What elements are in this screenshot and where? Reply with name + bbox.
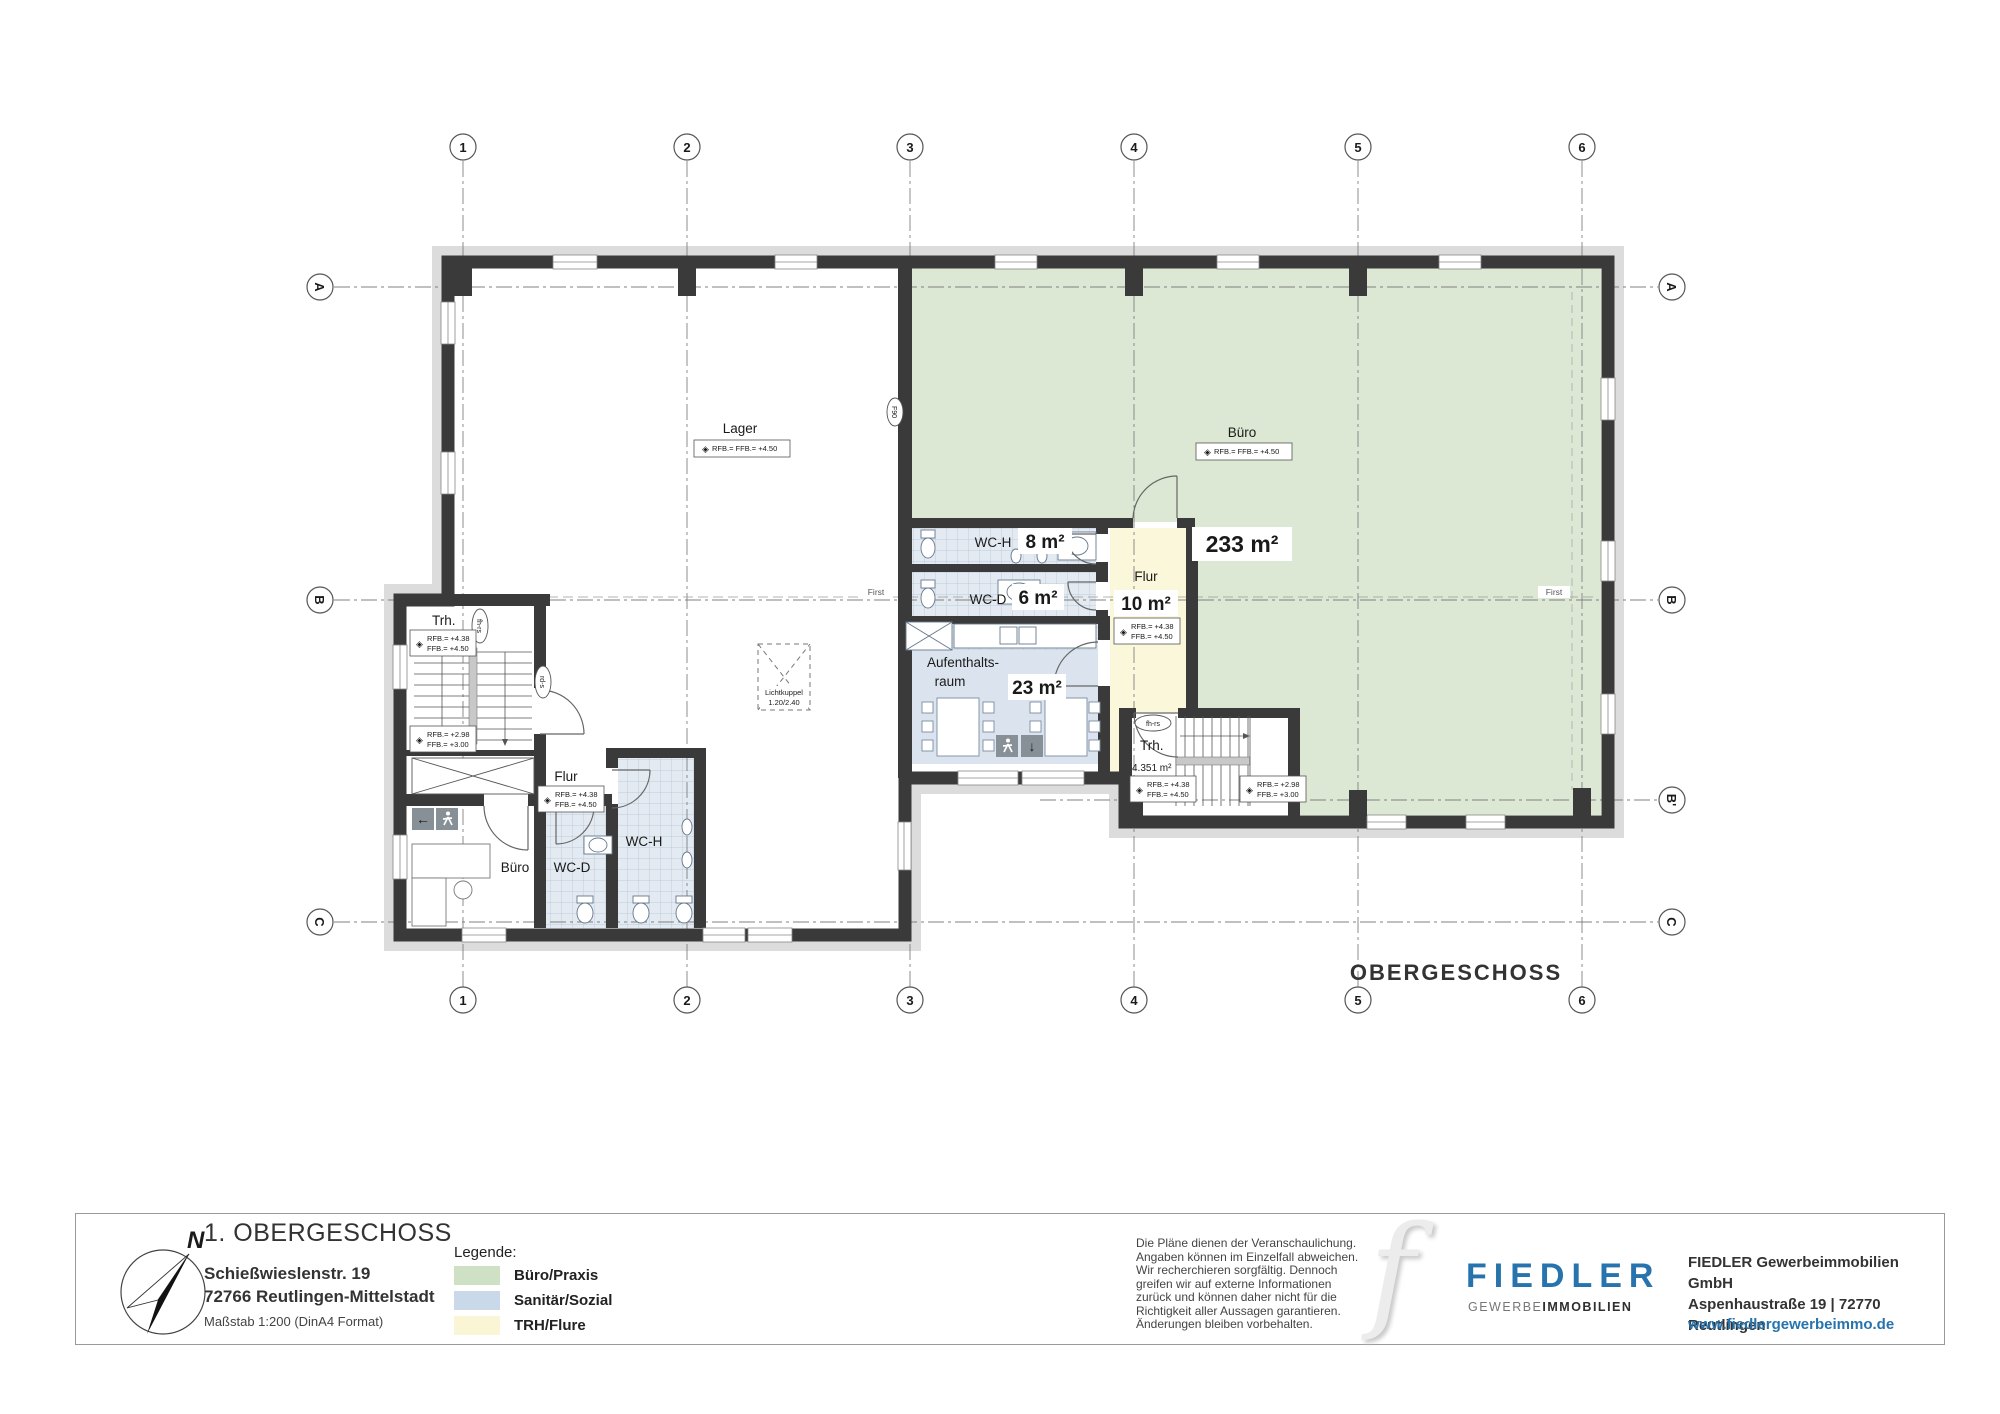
svg-text:4: 4 [1130,993,1138,1008]
svg-text:3: 3 [906,993,913,1008]
exit-sign-runner-aufenthalt [996,735,1018,757]
fiedler-logo-f-icon: f [1369,1222,1415,1322]
svg-text:23 m²: 23 m² [1012,678,1062,699]
disclaimer-line: Die Pläne dienen der Veranschaulichung. [1136,1237,1396,1251]
exit-sign-arrow-down: ↓ [1021,735,1043,757]
legend-item-buero: Büro/Praxis [454,1265,612,1286]
svg-text:C: C [1664,917,1679,927]
svg-text:6 m²: 6 m² [1018,588,1057,609]
svg-text:◈: ◈ [1204,447,1211,457]
shaft-left [412,758,534,794]
label-buero-main: Büro [1228,425,1257,440]
svg-text:RFB.= FFB.= +4.50: RFB.= FFB.= +4.50 [712,444,777,453]
label-aufenthalt-1: Aufenthalts- [927,655,999,670]
svg-text:◈: ◈ [1120,627,1127,637]
page: { "page": { "floor_label": "OBERGESCHOSS… [0,0,2000,1414]
svg-text:1: 1 [459,140,466,155]
badge-wcd-area: 6 m² [1012,584,1064,610]
label-trh-right-area: 4.351 m² [1132,763,1172,774]
svg-text:↓: ↓ [1029,738,1036,754]
label-wcd-lower: WC-D [554,860,591,875]
label-flur-lower: Flur [554,769,578,784]
svg-text:C: C [312,917,327,927]
logo-sub-gewerbe: GEWERBE [1468,1300,1542,1314]
svg-text:RFB.= +4.38: RFB.= +4.38 [1131,622,1174,631]
svg-text:←: ← [416,811,430,827]
svg-text:FFB.= +3.00: FFB.= +3.00 [1257,790,1299,799]
svg-text:2: 2 [683,993,690,1008]
label-flur-main: Flur [1134,569,1158,584]
legend-swatch-blue [454,1291,500,1310]
badge-wch-area: 8 m² [1018,528,1072,554]
fiedler-logo-subtitle: GEWERBEIMMOBILIEN [1468,1300,1632,1314]
level-box-lager: ◈ RFB.= FFB.= +4.50 [694,440,790,457]
svg-text:RFB.= +2.98: RFB.= +2.98 [1257,780,1300,789]
flur-strip-fill [1110,712,1120,778]
plan-title: 1. OBERGESCHOSS [204,1219,452,1248]
plan-address-street: Schießwieslenstr. 19 [204,1262,435,1285]
legend-heading: Legende: [454,1244,612,1261]
label-wch-lower: WC-H [626,834,663,849]
svg-text:FFB.= +4.50: FFB.= +4.50 [427,644,469,653]
first-label-right: First [1546,587,1563,597]
legend-item-trh: TRH/Flure [454,1315,612,1336]
svg-text:◈: ◈ [1246,785,1253,795]
exit-sign-arrow-left: ← [412,808,434,830]
svg-text:2: 2 [683,140,690,155]
legend-label-sanitaer: Sanitär/Sozial [514,1292,612,1309]
label-aufenthalt-2: raum [935,674,966,689]
disclaimer-line: Wir recherchieren sorgfältig. Dennoch [1136,1264,1396,1278]
floor-title: OBERGESCHOSS [1350,960,1562,985]
disclaimer: Die Pläne dienen der Veranschaulichung. … [1136,1237,1396,1332]
label-lager: Lager [723,421,758,436]
svg-text:FFB.= +4.50: FFB.= +4.50 [1131,632,1173,641]
label-buero-lower: Büro [501,860,530,875]
lichtkuppel-label-1: Lichtkuppel [765,688,803,697]
level-box-trh-left-1: ◈ RFB.= +4.38 FFB.= +4.50 [410,630,476,656]
first-label-left: First [868,587,885,597]
level-box-trh-right-1: ◈ RFB.= +4.38 FFB.= +4.50 [1130,776,1196,802]
svg-text:3: 3 [906,140,913,155]
disclaimer-line: Änderungen bleiben vorbehalten. [1136,1318,1396,1332]
svg-text:A: A [312,282,327,292]
svg-text:RFB.= +4.38: RFB.= +4.38 [1147,780,1190,789]
svg-text:1: 1 [459,993,466,1008]
svg-text:233 m²: 233 m² [1206,531,1279,557]
legend: Legende: Büro/Praxis Sanitär/Sozial TRH/… [454,1244,612,1336]
level-box-flur-lower: ◈ RFB.= +4.38 FFB.= +4.50 [538,786,604,812]
svg-text:F90: F90 [890,406,897,418]
svg-text:◈: ◈ [702,444,709,454]
svg-text:B: B [312,595,327,604]
svg-text:6: 6 [1578,993,1585,1008]
disclaimer-line: greifen wir auf externe Informationen [1136,1278,1396,1292]
svg-text:10 m²: 10 m² [1121,594,1171,615]
level-box-trh-left-2: ◈ RFB.= +2.98 FFB.= +3.00 [410,726,476,752]
legend-label-trh: TRH/Flure [514,1317,586,1334]
svg-text:RFB.= +2.98: RFB.= +2.98 [427,730,470,739]
disclaimer-line: zurück und können daher nicht für die [1136,1291,1396,1305]
svg-text:FFB.= +3.00: FFB.= +3.00 [427,740,469,749]
svg-text:FFB.= +4.50: FFB.= +4.50 [1147,790,1189,799]
svg-text:B: B [1664,595,1679,604]
level-box-buero: ◈ RFB.= FFB.= +4.50 [1196,443,1292,460]
title-block: N 1. OBERGESCHOSS Schießwieslenstr. 19 7… [75,1213,1945,1345]
exit-sign-runner-buero [436,808,458,830]
svg-text:RFB.= +4.38: RFB.= +4.38 [555,790,598,799]
svg-text:◈: ◈ [544,795,551,805]
level-box-trh-right-2: ◈ RFB.= +2.98 FFB.= +3.00 [1240,776,1306,802]
plan-scale: Maßstab 1:200 (DinA4 Format) [204,1314,383,1329]
label-trh-left: Trh. [432,613,456,628]
plan-address-city: 72766 Reutlingen-Mittelstadt [204,1285,435,1308]
svg-text:◈: ◈ [416,639,423,649]
compass-n-label: N [187,1227,205,1254]
svg-text:A: A [1664,282,1679,292]
svg-text:8 m²: 8 m² [1025,532,1064,553]
svg-text:4: 4 [1130,140,1138,155]
svg-text:5: 5 [1354,140,1361,155]
svg-text:RFB.= FFB.= +4.50: RFB.= FFB.= +4.50 [1214,447,1279,456]
disclaimer-line: Angaben können im Einzelfall abweichen. [1136,1251,1396,1265]
legend-swatch-yellow [454,1316,500,1335]
badge-aufenthalt-area: 23 m² [1008,674,1066,700]
logo-sub-immobilien: IMMOBILIEN [1542,1300,1632,1314]
lichtkuppel-label-2: 1.20/2.40 [768,698,799,707]
legend-swatch-green [454,1266,500,1285]
legend-label-buero: Büro/Praxis [514,1267,598,1284]
svg-text:◈: ◈ [416,735,423,745]
floorplan-drawing: First First [0,0,2000,1414]
badge-flur-area: 10 m² [1114,590,1178,616]
website-link[interactable]: www.fiedlergewerbeimmo.de [1688,1316,1894,1333]
svg-text:◈: ◈ [1136,785,1143,795]
kitchen-counter [906,622,1096,650]
svg-text:5: 5 [1354,993,1361,1008]
company-name: FIEDLER Gewerbeimmobilien GmbH [1688,1252,1944,1294]
legend-item-sanitaer: Sanitär/Sozial [454,1290,612,1311]
svg-text:rd-s: rd-s [538,676,545,689]
disclaimer-line: Richtigkeit aller Aussagen garantieren. [1136,1305,1396,1319]
fiedler-logo-name: FIEDLER [1466,1257,1660,1296]
label-wch-main: WC-H [975,535,1012,550]
level-box-flur-main: ◈ RFB.= +4.38 FFB.= +4.50 [1114,618,1180,644]
svg-text:6: 6 [1578,140,1585,155]
svg-text:B': B' [1664,794,1679,806]
svg-text:RFB.= +4.38: RFB.= +4.38 [427,634,470,643]
badge-buero-area: 233 m² [1192,527,1292,561]
label-trh-right: Trh. [1140,738,1164,753]
svg-text:FFB.= +4.50: FFB.= +4.50 [555,800,597,809]
label-wcd-main: WC-D [970,592,1007,607]
svg-text:fh-rs: fh-rs [1146,721,1161,728]
